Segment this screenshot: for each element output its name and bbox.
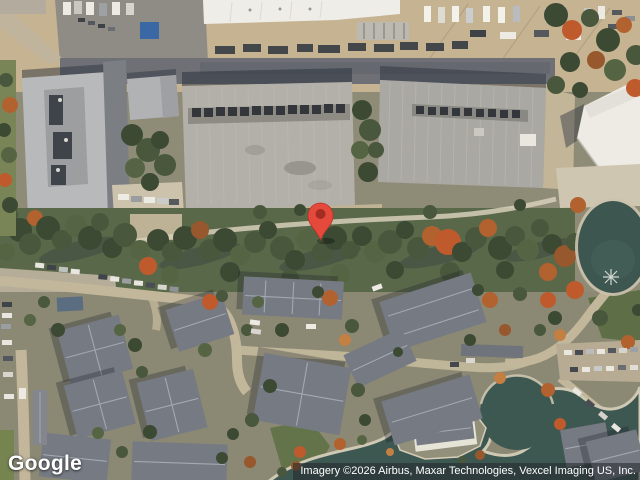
pin-inner-dot [316, 209, 326, 219]
map-viewport[interactable]: Google Imagery ©2026 Airbus, Maxar Techn… [0, 0, 640, 480]
map-pin-icon[interactable] [296, 188, 344, 244]
attribution-text: Imagery ©2026 Airbus, Maxar Technologies… [300, 463, 636, 480]
fountain-icon [603, 269, 619, 285]
pin-body [308, 203, 333, 240]
map-attribution: Imagery ©2026 Airbus, Maxar Technologies… [293, 463, 640, 480]
blue-tarp [140, 22, 159, 39]
blue-roof-structure [57, 296, 84, 311]
google-logo[interactable]: Google [8, 452, 82, 476]
